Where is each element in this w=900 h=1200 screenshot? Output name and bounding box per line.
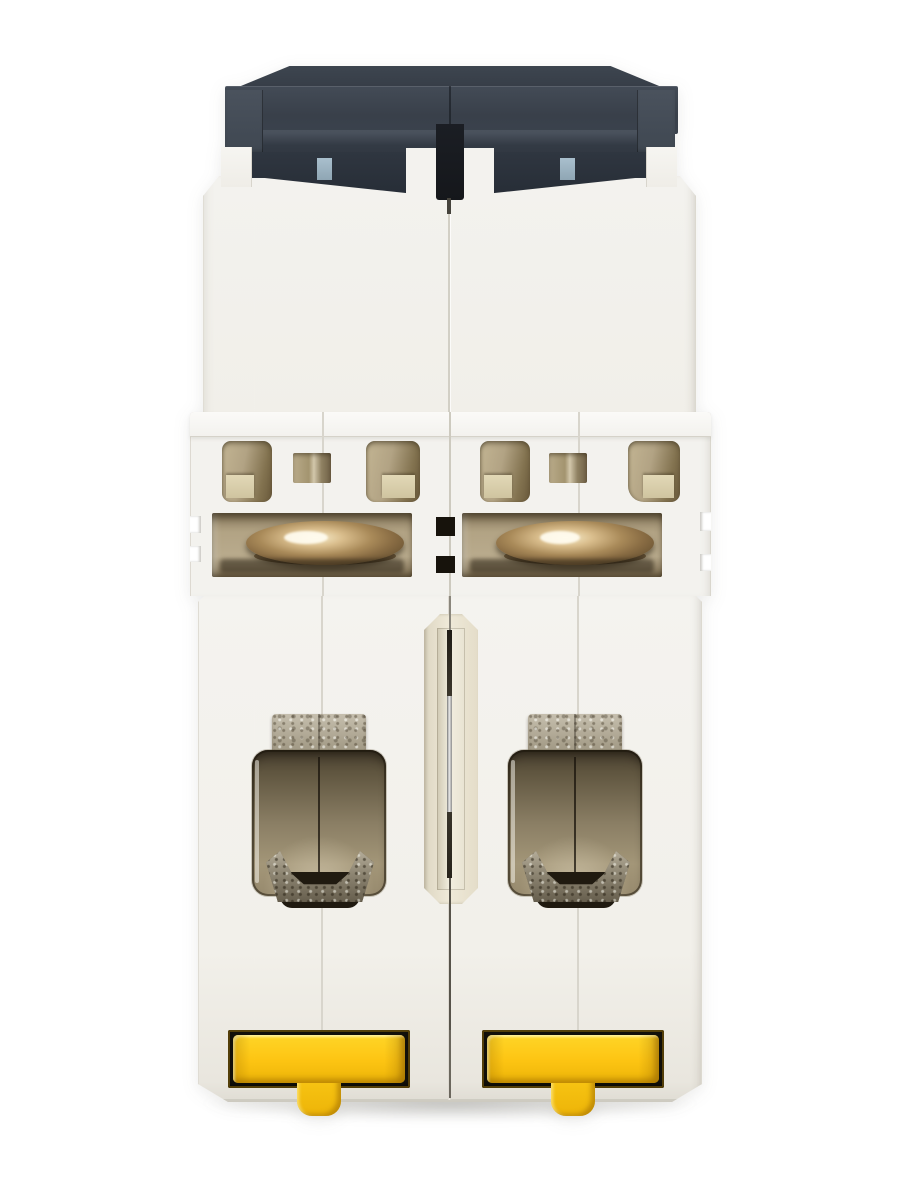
link-rod-upper (447, 630, 452, 696)
coil-highlight (284, 531, 328, 544)
cap-latch-tab-right (560, 158, 575, 180)
terminal-frame-highlight (511, 760, 515, 883)
din-clip-slider-left (233, 1035, 405, 1083)
terminal-frame-highlight (255, 760, 259, 883)
product-photo-stage (0, 0, 900, 1200)
arc-vent-left-outer (222, 441, 272, 502)
cap-white-notch-right (462, 148, 494, 198)
link-rod-silver (447, 696, 452, 812)
arc-vent-right-outer (628, 441, 680, 502)
link-rod-line-end (449, 1030, 451, 1098)
center-cutout-lower (436, 556, 455, 573)
housing-shoulder-left (221, 147, 252, 187)
vent-square-right (549, 453, 587, 483)
vent-square-left (293, 453, 331, 483)
vent-inner-shelf (643, 475, 674, 498)
cap-white-notch-left (406, 148, 438, 198)
arc-vent-right-inner (480, 441, 530, 502)
terminal-seam-line (574, 757, 576, 888)
center-cutout-upper (436, 517, 455, 536)
vent-inner-shelf (484, 475, 512, 498)
coil-window-left (212, 513, 412, 577)
edge-notch (700, 554, 711, 571)
cap-step-left (225, 90, 263, 154)
edge-notch (700, 512, 711, 531)
terminal-seam-line (318, 757, 320, 888)
cap-latch-tab-left (317, 158, 332, 180)
din-clip-slider-right (487, 1035, 659, 1083)
housing-shoulder-right (646, 147, 677, 187)
cap-center-pin (447, 198, 451, 214)
coil-shadow (220, 559, 404, 573)
coil-shadow (470, 559, 654, 573)
cap-step-right (637, 90, 675, 154)
cap-center-latch (436, 124, 464, 200)
link-rod-line-bottom (449, 878, 451, 1030)
circuit-breaker-unit (0, 0, 900, 1200)
coil-highlight (540, 531, 580, 544)
vent-inner-shelf (226, 475, 254, 498)
edge-notch (190, 516, 201, 533)
link-rod-line-top (449, 596, 451, 630)
edge-notch (190, 546, 201, 562)
arc-vent-left-inner (366, 441, 420, 502)
cap-top-surface (236, 66, 664, 88)
link-rod-lower (447, 812, 452, 878)
vent-inner-shelf (382, 475, 414, 498)
coil-window-right (462, 513, 662, 577)
